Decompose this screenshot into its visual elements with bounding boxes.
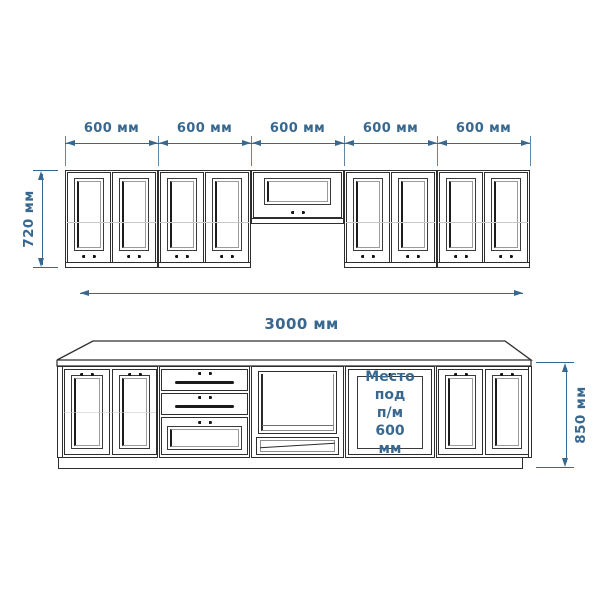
door-panel (264, 178, 331, 205)
door-panel-inner (448, 378, 473, 446)
door-handle-dots (291, 211, 305, 214)
door-handle-dots (128, 373, 142, 376)
arrow-left-icon (159, 140, 168, 146)
drawer-front-1 (161, 369, 248, 391)
plinth-bottom-line (58, 468, 523, 469)
dim-label-3000: 3000 мм (80, 315, 523, 333)
dishwasher-label-line1: Место (365, 368, 414, 386)
drawer-panel (167, 426, 242, 450)
dimension-line (42, 174, 43, 265)
dim-label-850: 850 мм (573, 375, 589, 455)
upper-cabinet-section-3-hood (251, 170, 344, 224)
arrow-left-icon (438, 140, 447, 146)
cabinet-bottom-rail (345, 262, 436, 267)
arrow-right-icon (242, 140, 251, 146)
cabinet-door (112, 172, 156, 263)
base-cabinet-section-5 (436, 366, 529, 458)
door-handle-dots (454, 255, 468, 258)
cabinet-door (439, 172, 483, 263)
arrow-left-icon (252, 140, 261, 146)
door-panel-inner (170, 181, 194, 248)
base-cabinet-section-1 (62, 366, 158, 458)
door-handle-dots (80, 373, 94, 376)
door-handle-dots (220, 255, 234, 258)
niche-bottom-drawer (256, 437, 339, 455)
door-handle-dots (175, 255, 189, 258)
flip-up-door (253, 172, 342, 218)
countertop (0, 334, 600, 370)
door-panel (398, 178, 428, 251)
cabinet-door (391, 172, 435, 263)
cabinet-door (346, 172, 390, 263)
shelf-line (67, 222, 156, 223)
niche-shelf-line (262, 425, 333, 426)
door-handle-dots (454, 373, 468, 376)
door-panel-inner (356, 181, 380, 248)
base-cabinet-section-3-oven-niche (251, 366, 344, 458)
arrow-right-icon (149, 140, 158, 146)
extension-tick (33, 267, 58, 268)
arrow-up-icon (38, 171, 44, 180)
plinth-left-edge (58, 458, 59, 468)
extension-line (530, 136, 531, 166)
door-handle-dots (406, 255, 420, 258)
door-panel (492, 375, 522, 449)
dim-label-600-4: 600 мм (344, 121, 437, 136)
arrow-right-icon (521, 140, 530, 146)
dishwasher-label-line4: мм (379, 440, 402, 458)
cabinet-door (67, 172, 111, 263)
door-panel-inner (267, 181, 328, 202)
door-panel (167, 178, 197, 251)
drawer-handle-bar (175, 381, 234, 384)
arrow-up-icon (562, 363, 568, 372)
drawer-front-3 (161, 417, 248, 455)
cabinet-door (438, 369, 483, 455)
extension-tick (536, 362, 574, 363)
upper-cabinet-section-2 (158, 170, 251, 268)
drawer-handle-dots (198, 396, 212, 399)
dimension-line (566, 368, 567, 462)
arrow-right-icon (335, 140, 344, 146)
door-panel (119, 178, 149, 251)
arrow-right-icon (514, 290, 523, 296)
dimension-line (65, 143, 530, 144)
dishwasher-label-line2: под (375, 386, 406, 404)
door-panel (74, 178, 104, 251)
cabinet-door (160, 172, 204, 263)
arrow-right-icon (428, 140, 437, 146)
extension-tick (33, 170, 58, 171)
arrow-left-icon (345, 140, 354, 146)
drawer-handle-dots (198, 421, 212, 424)
door-panel (212, 178, 242, 251)
door-panel (446, 178, 476, 251)
dim-label-600-2: 600 мм (158, 121, 251, 136)
base-cabinet-section-4-dishwasher: Место под п/м 600 мм (345, 366, 435, 458)
dimension-line (80, 293, 523, 294)
dim-label-600-1: 600 мм (65, 121, 158, 136)
drawer-handle-bar (175, 405, 234, 408)
cabinet-door (205, 172, 249, 263)
door-panel: Место под п/м 600 мм (357, 376, 423, 449)
arrow-down-icon (38, 258, 44, 267)
door-handle-dots (499, 255, 513, 258)
extension-tick (536, 467, 574, 468)
drawer-front-2 (161, 393, 248, 415)
door-panel-inner (449, 181, 473, 248)
upper-cabinet-section-1 (65, 170, 158, 268)
door-panel (353, 178, 383, 251)
kitchen-elevation-drawing: 600 мм 600 мм 600 мм 600 мм 600 мм 720 м… (0, 0, 600, 600)
shelf-line (346, 222, 435, 223)
cabinet-bottom-rail (252, 218, 343, 223)
drawer-handle-dots (198, 372, 212, 375)
cabinet-bottom-rail (438, 262, 529, 267)
plinth-right-edge (522, 458, 523, 468)
dishwasher-label-line3: п/м 600 (360, 404, 420, 440)
door-panel-inner (495, 378, 519, 446)
cabinet-bottom-rail (159, 262, 250, 267)
cabinet-door (484, 172, 528, 263)
upper-cabinet-section-5 (437, 170, 530, 268)
cabinet-bottom-rail (66, 262, 157, 267)
door-panel-inner (122, 181, 146, 248)
door-handle-dots (500, 373, 514, 376)
dim-label-720: 720 мм (21, 179, 37, 259)
door-panel-inner (494, 181, 518, 248)
dim-label-600-3: 600 мм (251, 121, 344, 136)
arrow-down-icon (562, 458, 568, 467)
dishwasher-space-label: Место под п/м 600 мм (360, 379, 420, 446)
door-handle-dots (82, 255, 96, 258)
dim-label-600-5: 600 мм (437, 121, 530, 136)
dishwasher-front-door: Место под п/м 600 мм (348, 369, 432, 455)
door-panel-inner (215, 181, 239, 248)
door-panel (491, 178, 521, 251)
oven-niche-opening (258, 371, 337, 434)
door-handle-dots (127, 255, 141, 258)
base-cabinet-section-2-drawers (159, 366, 250, 458)
shelf-line (439, 222, 528, 223)
door-handle-dots (361, 255, 375, 258)
door-panel-inner (77, 181, 101, 248)
door-panel (445, 375, 476, 449)
niche-inner (261, 374, 334, 431)
arrow-left-icon (80, 290, 89, 296)
drawer-panel-inner (170, 429, 239, 447)
shelf-line (160, 222, 249, 223)
door-panel-inner (401, 181, 425, 248)
arrow-left-icon (66, 140, 75, 146)
cabinet-door (485, 369, 529, 455)
upper-cabinet-section-4 (344, 170, 437, 268)
shelf-line (64, 412, 156, 413)
